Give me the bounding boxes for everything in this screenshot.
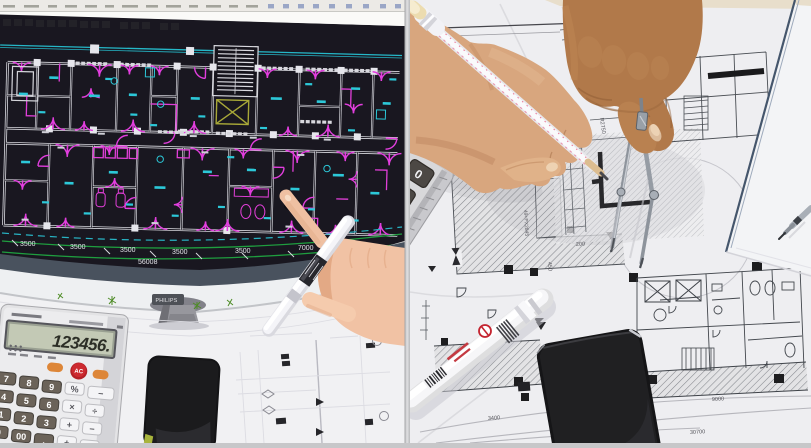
- svg-text:9: 9: [49, 382, 55, 392]
- svg-text:3400: 3400: [488, 415, 501, 422]
- svg-text:00: 00: [16, 431, 27, 442]
- svg-text:÷: ÷: [92, 406, 98, 416]
- svg-text:3500: 3500: [172, 249, 188, 256]
- svg-text:−: −: [98, 388, 104, 398]
- svg-text:3500: 3500: [70, 244, 86, 251]
- svg-text:3500: 3500: [235, 248, 251, 255]
- svg-text:4: 4: [1, 392, 7, 402]
- svg-text:7: 7: [3, 374, 9, 384]
- svg-text:30700: 30700: [690, 429, 706, 436]
- svg-text:−: −: [89, 424, 95, 434]
- svg-text:7000: 7000: [298, 245, 314, 252]
- svg-text:9000: 9000: [712, 396, 725, 403]
- svg-text:6: 6: [46, 400, 52, 410]
- svg-text:3500: 3500: [120, 247, 136, 254]
- svg-text:PHILIPS: PHILIPS: [156, 298, 178, 304]
- svg-text:AC: AC: [74, 369, 84, 376]
- svg-text:3500: 3500: [20, 241, 36, 248]
- svg-text:%: %: [70, 384, 79, 395]
- svg-text:5: 5: [23, 396, 29, 406]
- svg-text:2: 2: [21, 414, 27, 424]
- svg-text:56008: 56008: [138, 259, 158, 266]
- svg-text:450: 450: [546, 262, 553, 272]
- svg-text:3: 3: [43, 418, 49, 428]
- svg-text:8: 8: [26, 378, 32, 388]
- svg-text:+: +: [66, 420, 72, 430]
- svg-text:×: ×: [69, 402, 75, 412]
